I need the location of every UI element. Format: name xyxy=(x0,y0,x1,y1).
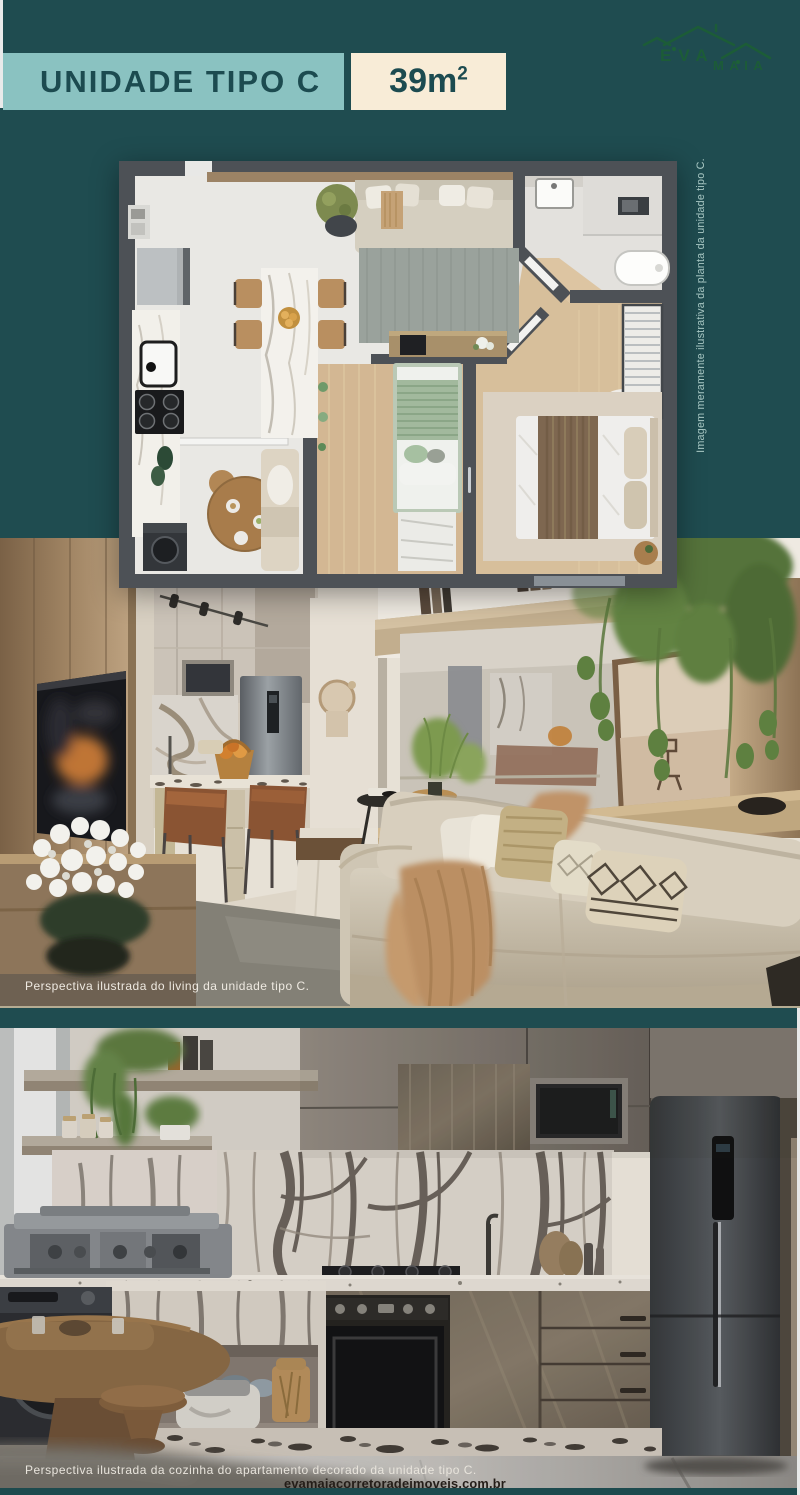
svg-text:EVA: EVA xyxy=(660,46,715,65)
svg-text:MAIA: MAIA xyxy=(713,58,768,73)
